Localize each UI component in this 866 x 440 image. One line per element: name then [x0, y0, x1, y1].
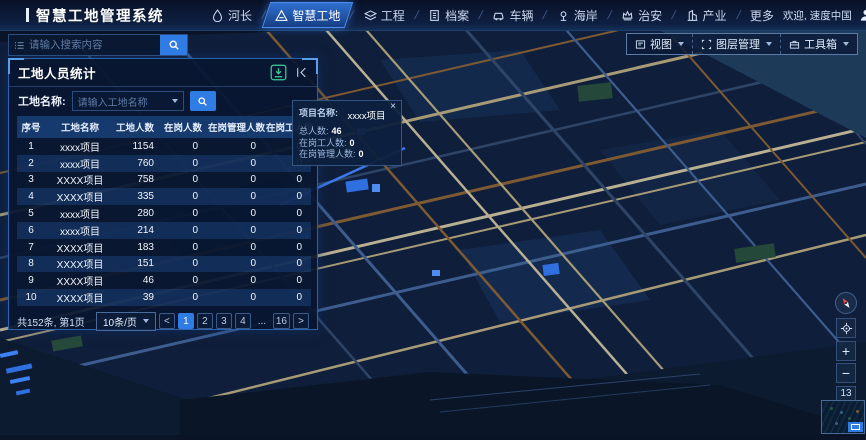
table-header-row: 序号工地名称工地人数在岗人数在岗管理人数在岗工人数	[17, 116, 311, 138]
chevron-down-icon	[678, 42, 684, 46]
table-cell: XXXX项目	[45, 188, 115, 205]
table-cell: 0	[207, 172, 265, 189]
table-cell: 335	[115, 188, 163, 205]
table-cell: 8	[17, 256, 45, 273]
site-name-select-placeholder: 请输入工地名称	[78, 94, 170, 109]
table-cell: 0	[207, 205, 265, 222]
search-icon	[197, 96, 208, 107]
filter-search-button[interactable]	[190, 91, 216, 111]
table-cell: 0	[265, 205, 311, 222]
table-row[interactable]: 5xxxx项目280000	[17, 205, 311, 222]
table-cell: 0	[163, 155, 207, 172]
nav-item-label: 智慧工地	[292, 7, 340, 24]
column-header: 在岗人数	[163, 116, 207, 138]
page-ellipsis: ...	[254, 313, 270, 329]
nav-item-label: 海岸	[574, 7, 598, 24]
view-button[interactable]: 视图	[627, 34, 692, 54]
global-search-bar	[8, 34, 188, 56]
nav-item-label: 更多	[750, 7, 774, 24]
minimap-texture	[830, 407, 833, 410]
popup-header: 项目名称: xxxx项目	[299, 106, 395, 122]
main-nav: 河长/智慧工地/工程/档案/车辆/海岸/治安/产业/更多	[202, 0, 783, 30]
square-icon	[701, 39, 712, 50]
zoom-level-badge: 13	[836, 386, 856, 401]
table-cell: XXXX项目	[45, 272, 115, 289]
popup-stat-line: 在岗管理人数:0	[299, 149, 395, 161]
column-header: 在岗管理人数	[207, 116, 265, 138]
brand-accent-bar	[26, 8, 29, 22]
site-icon	[275, 9, 288, 22]
map-toolbar: 视图图层管理工具箱	[626, 33, 858, 55]
compass-icon[interactable]	[835, 292, 857, 314]
nav-item-label: 档案	[445, 7, 469, 24]
nav-item-label: 工程	[381, 7, 405, 24]
table-cell: 0	[163, 172, 207, 189]
table-cell: 280	[115, 205, 163, 222]
site-name-filter-label: 工地名称:	[18, 93, 66, 109]
nav-item-river-chief[interactable]: 河长	[202, 1, 261, 29]
car-icon	[492, 9, 505, 22]
nav-item-archives[interactable]: 档案	[419, 1, 478, 29]
table-cell: 46	[115, 272, 163, 289]
site-personnel-panel: 工地人员统计 工地名称: 请输入工地名称 序号工地名称工地人数在岗人数在岗管理人…	[8, 58, 318, 330]
table-cell: 1	[17, 138, 45, 155]
popup-stat-value: 0	[350, 138, 355, 150]
table-cell: 2	[17, 155, 45, 172]
table-cell: 214	[115, 222, 163, 239]
table-row[interactable]: 4XXXX项目335000	[17, 188, 311, 205]
search-button[interactable]	[160, 35, 187, 55]
popup-stat-label: 总人数:	[299, 126, 329, 138]
pin-icon	[557, 9, 570, 22]
layer-manager-button[interactable]: 图层管理	[692, 34, 780, 54]
welcome-text: 欢迎, 速度中国	[783, 8, 852, 23]
table-cell: 0	[207, 289, 265, 306]
table-cell: 0	[163, 256, 207, 273]
locate-button[interactable]	[836, 318, 856, 338]
table-row[interactable]: 2xxxx项目760000	[17, 155, 311, 172]
table-cell: 0	[163, 222, 207, 239]
table-cell: 0	[163, 272, 207, 289]
close-icon[interactable]: ×	[390, 102, 396, 112]
popup-name-label: 项目名称:	[299, 106, 338, 119]
list-icon	[9, 35, 29, 55]
table-row[interactable]: 3XXXX项目758000	[17, 172, 311, 189]
popup-stat-value: 0	[359, 149, 364, 161]
layer-manager-label: 图层管理	[716, 36, 760, 52]
minimap-expand-button[interactable]	[848, 422, 863, 432]
zoom-out-button[interactable]: −	[836, 363, 856, 383]
table-cell: 0	[265, 239, 311, 256]
table-cell: 10	[17, 289, 45, 306]
toolbox-button[interactable]: 工具箱	[780, 34, 857, 54]
toolbox-icon	[789, 39, 800, 50]
table-cell: 3	[17, 172, 45, 189]
top-bar: 智慧工地管理系统 河长/智慧工地/工程/档案/车辆/海岸/治安/产业/更多 欢迎…	[0, 0, 866, 31]
layers-icon	[364, 9, 377, 22]
table-cell: 760	[115, 155, 163, 172]
file-icon	[428, 9, 441, 22]
collapse-panel-icon[interactable]	[295, 66, 308, 79]
site-info-popup: × 项目名称: xxxx项目 总人数:46在岗工人数:0在岗管理人数:0	[292, 100, 402, 166]
table-cell: 151	[115, 256, 163, 273]
droplet-icon	[211, 9, 224, 22]
table-cell: 0	[265, 272, 311, 289]
popup-name-value: xxxx项目	[347, 108, 385, 122]
table-cell: 0	[163, 188, 207, 205]
panel-title: 工地人员统计	[18, 63, 96, 82]
table-cell: 6	[17, 222, 45, 239]
table-row[interactable]: 1xxxx项目1154000	[17, 138, 311, 155]
app-brand: 智慧工地管理系统	[26, 5, 164, 26]
table-cell: 758	[115, 172, 163, 189]
column-header: 工地名称	[45, 116, 115, 138]
nav-item-label: 河长	[228, 7, 252, 24]
nav-item-label: 治安	[638, 7, 662, 24]
nav-item-smart-site[interactable]: 智慧工地	[266, 1, 349, 29]
table-cell: 9	[17, 272, 45, 289]
page-button-4[interactable]: 4	[235, 313, 251, 329]
nav-item-coast[interactable]: 海岸	[548, 1, 607, 29]
table-cell: 0	[265, 188, 311, 205]
page-size-select[interactable]: 10条/页	[96, 312, 156, 331]
popup-stat-value: 46	[332, 126, 342, 138]
site-name-select[interactable]: 请输入工地名称	[72, 91, 184, 111]
pager-buttons: <1234...16>	[159, 313, 309, 329]
user-area[interactable]: 欢迎, 速度中国	[783, 8, 866, 23]
table-cell: 0	[207, 138, 265, 155]
nav-item-industry[interactable]: 产业	[677, 1, 736, 29]
chevron-down-icon	[766, 42, 772, 46]
popup-stat-line: 总人数:46	[299, 126, 395, 138]
popup-stat-label: 在岗管理人数:	[299, 149, 356, 161]
table-cell: 0	[207, 155, 265, 172]
table-header: 序号工地名称工地人数在岗人数在岗管理人数在岗工人数	[17, 116, 311, 138]
crosshair-icon	[840, 322, 853, 335]
nav-item-label: 产业	[703, 7, 727, 24]
table-cell: 39	[115, 289, 163, 306]
table-cell: 0	[207, 256, 265, 273]
doc-icon	[635, 39, 646, 50]
pagination: 10条/页 <1234...16>	[96, 312, 309, 331]
table-cell: xxxx项目	[45, 155, 115, 172]
table-cell: 0	[265, 289, 311, 306]
table-row[interactable]: 7XXXX项目183000	[17, 239, 311, 256]
table-cell: 0	[163, 289, 207, 306]
table-cell: 183	[115, 239, 163, 256]
table-cell: xxxx项目	[45, 222, 115, 239]
search-input[interactable]	[29, 35, 160, 55]
total-records-text: 共152条, 第1页	[17, 314, 85, 329]
table-body: 1xxxx项目11540002xxxx项目7600003XXXX项目758000…	[17, 138, 311, 306]
panel-filter-row: 工地名称: 请输入工地名称	[9, 87, 317, 114]
table-cell: 0	[163, 239, 207, 256]
chevron-down-icon	[843, 42, 849, 46]
table-cell: 0	[163, 138, 207, 155]
nav-item-security[interactable]: 治安	[612, 1, 671, 29]
next-page-button[interactable]: >	[293, 313, 309, 329]
table-cell: XXXX项目	[45, 239, 115, 256]
table-cell: 4	[17, 188, 45, 205]
table-cell: 1154	[115, 138, 163, 155]
column-header: 序号	[17, 116, 45, 138]
table-cell: 0	[265, 172, 311, 189]
nav-item-more[interactable]: 更多	[741, 1, 783, 29]
popup-stat-label: 在岗工人数:	[299, 138, 347, 150]
page-button-2[interactable]: 2	[197, 313, 213, 329]
zoom-in-button[interactable]: +	[836, 341, 856, 361]
toolbox-label: 工具箱	[804, 36, 837, 52]
page-button-1[interactable]: 1	[178, 313, 194, 329]
view-label: 视图	[650, 36, 672, 52]
prev-page-button[interactable]: <	[159, 313, 175, 329]
table-cell: XXXX项目	[45, 256, 115, 273]
table-cell: 0	[207, 239, 265, 256]
page-button-16[interactable]: 16	[273, 313, 290, 329]
table-cell: 0	[207, 272, 265, 289]
panel-footer: 共152条, 第1页 10条/页 <1234...16>	[9, 306, 317, 331]
crown-icon	[621, 9, 634, 22]
popup-stat-line: 在岗工人数:0	[299, 138, 395, 150]
table-cell: xxxx项目	[45, 138, 115, 155]
table-cell: xxxx项目	[45, 205, 115, 222]
table-row[interactable]: 8XXXX项目151000	[17, 256, 311, 273]
table-cell: XXXX项目	[45, 289, 115, 306]
download-icon[interactable]	[270, 64, 287, 81]
nav-item-vehicles[interactable]: 车辆	[483, 1, 542, 29]
table-cell: 0	[265, 222, 311, 239]
personnel-table: 序号工地名称工地人数在岗人数在岗管理人数在岗工人数 1xxxx项目1154000…	[17, 116, 311, 306]
table-cell: 7	[17, 239, 45, 256]
table-cell: 0	[265, 256, 311, 273]
app-title: 智慧工地管理系统	[36, 5, 164, 26]
page-button-3[interactable]: 3	[216, 313, 232, 329]
chevron-down-icon	[143, 319, 149, 323]
nav-item-engineering[interactable]: 工程	[355, 1, 414, 29]
user-avatar-icon[interactable]	[859, 8, 866, 22]
column-header: 工地人数	[115, 116, 163, 138]
overview-minimap[interactable]	[821, 400, 865, 434]
table-cell: XXXX项目	[45, 172, 115, 189]
page-size-value: 10条/页	[103, 314, 137, 329]
chevron-down-icon	[172, 99, 178, 103]
table-row[interactable]: 9XXXX项目46000	[17, 272, 311, 289]
popup-stats: 总人数:46在岗工人数:0在岗管理人数:0	[299, 126, 395, 161]
table-row[interactable]: 10XXXX项目39000	[17, 289, 311, 306]
table-row[interactable]: 6xxxx项目214000	[17, 222, 311, 239]
building-icon	[686, 9, 699, 22]
table-cell: 0	[207, 188, 265, 205]
table-cell: 0	[207, 222, 265, 239]
nav-item-label: 车辆	[509, 7, 533, 24]
panel-header: 工地人员统计	[9, 59, 317, 87]
search-icon	[168, 39, 180, 51]
table-cell: 5	[17, 205, 45, 222]
table-cell: 0	[163, 205, 207, 222]
